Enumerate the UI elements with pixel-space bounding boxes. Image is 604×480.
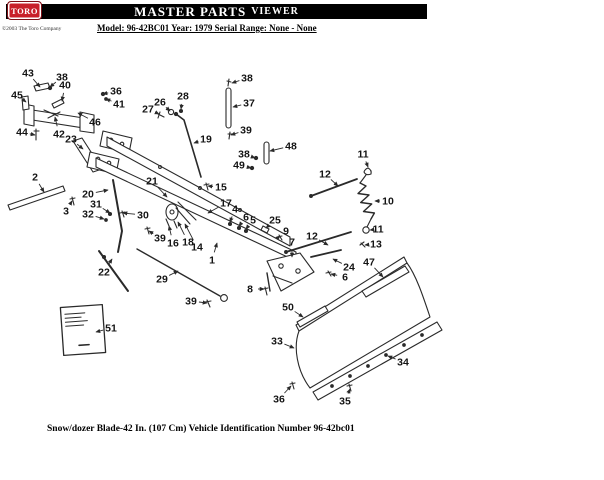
part-callout-19-23[interactable]: 19 — [200, 134, 212, 146]
part-callout-41-5[interactable]: 41 — [113, 99, 125, 111]
part-callout-34-56[interactable]: 34 — [397, 357, 409, 369]
part-callout-36-4[interactable]: 36 — [110, 86, 122, 98]
part-callout-1-31[interactable]: 1 — [209, 255, 215, 267]
part-callout-44-7[interactable]: 44 — [16, 127, 28, 139]
part-callout-21-25[interactable]: 21 — [146, 176, 158, 188]
part-callout-39-41[interactable]: 39 — [240, 125, 252, 137]
part-callout-39-18[interactable]: 39 — [185, 296, 197, 308]
part-callout-29-17[interactable]: 29 — [156, 274, 168, 286]
part-callout-26-21[interactable]: 26 — [154, 97, 166, 109]
callout-leader-19-23 — [194, 142, 198, 143]
part-callout-27-20[interactable]: 27 — [142, 104, 154, 116]
parts-diagram: 4338404536414644422323203132302229395127… — [0, 0, 604, 480]
callout-leader-50-54 — [295, 311, 303, 317]
callout-leader-11-45 — [366, 161, 368, 167]
part-callout-35-57[interactable]: 35 — [339, 396, 351, 408]
callout-leader-17-26 — [208, 207, 219, 213]
callout-leader-26-21 — [166, 107, 170, 111]
part-callout-45-3[interactable]: 45 — [11, 90, 23, 102]
callout-leader-35-57 — [348, 389, 350, 394]
part-callout-10-47[interactable]: 10 — [382, 196, 394, 208]
callout-leader-2-10 — [39, 184, 44, 192]
callout-leader-39-30 — [149, 231, 153, 234]
toro-logo-text: TORO — [11, 6, 38, 16]
part-callout-12-46[interactable]: 12 — [319, 169, 331, 181]
master-parts-viewer-window: MASTER PARTS VIEWER TORO ©2003 The Toro … — [0, 0, 604, 480]
part-callout-48-42[interactable]: 48 — [285, 141, 297, 153]
part-callout-46-6[interactable]: 46 — [89, 117, 101, 129]
callout-leader-22-16 — [108, 259, 112, 265]
part-callout-2-10[interactable]: 2 — [32, 172, 38, 184]
part-callout-33-55[interactable]: 33 — [271, 336, 283, 348]
part-callout-11-45[interactable]: 11 — [357, 149, 368, 161]
callout-leader-18-28 — [178, 222, 184, 235]
part-callout-23-9[interactable]: 23 — [65, 134, 77, 146]
callout-leader-24-51 — [333, 259, 342, 263]
part-callout-7-37[interactable]: 7 — [289, 237, 295, 249]
part-callout-32-14[interactable]: 32 — [82, 209, 94, 221]
part-callout-6-52[interactable]: 6 — [342, 272, 348, 284]
part-callout-25-35[interactable]: 25 — [269, 215, 281, 227]
callout-leader-37-40 — [233, 105, 241, 107]
part-callout-22-16[interactable]: 22 — [98, 267, 110, 279]
part-callout-28-22[interactable]: 28 — [177, 91, 189, 103]
part-callout-42-8[interactable]: 42 — [53, 129, 65, 141]
part-callout-39-30[interactable]: 39 — [154, 233, 166, 245]
part-callout-13-50[interactable]: 13 — [370, 239, 382, 251]
part-callout-38-39[interactable]: 38 — [241, 73, 253, 85]
callout-leader-6-52 — [331, 274, 337, 275]
part-callout-4-32[interactable]: 4 — [232, 204, 238, 216]
part-callout-14-29[interactable]: 14 — [191, 242, 203, 254]
callout-leader-20-12 — [96, 190, 108, 192]
part-callout-5-34[interactable]: 5 — [250, 215, 256, 227]
callout-leader-30-15 — [123, 213, 135, 214]
part-callout-51-19[interactable]: 51 — [105, 323, 117, 335]
callout-leader-27-20 — [155, 112, 159, 114]
part-callout-43-0[interactable]: 43 — [22, 68, 34, 80]
callout-leader-32-14 — [96, 216, 104, 219]
part-callout-16-27[interactable]: 16 — [167, 238, 179, 250]
callout-leader-31-13 — [103, 208, 110, 213]
part-callout-17-26[interactable]: 17 — [220, 198, 232, 210]
part-callout-8-38[interactable]: 8 — [247, 284, 253, 296]
callout-leader-16-27 — [169, 226, 171, 235]
part-callout-36-58[interactable]: 36 — [273, 394, 285, 406]
callout-leader-3-11 — [70, 201, 72, 204]
part-callout-37-40[interactable]: 37 — [243, 98, 255, 110]
part-callout-40-2[interactable]: 40 — [59, 80, 71, 92]
callout-leader-29-17 — [169, 271, 178, 275]
callout-leader-36-58 — [284, 386, 291, 393]
callout-leader-47-53 — [374, 268, 383, 277]
part-callout-3-11[interactable]: 3 — [63, 206, 69, 218]
part-callout-6-33[interactable]: 6 — [243, 212, 249, 224]
part-callout-15-24[interactable]: 15 — [215, 182, 227, 194]
toro-logo[interactable]: TORO — [7, 1, 42, 20]
part-callout-30-15[interactable]: 30 — [137, 210, 149, 222]
callout-leader-28-22 — [181, 104, 182, 109]
callout-leader-48-42 — [270, 148, 283, 151]
callout-leader-38-39 — [232, 81, 239, 83]
callout-leader-38-1 — [50, 82, 56, 87]
callout-leader-1-31 — [214, 243, 217, 252]
part-callout-12-49[interactable]: 12 — [306, 231, 318, 243]
instruction-sheet-icon — [60, 305, 105, 356]
callout-leader-44-7 — [30, 134, 35, 135]
part-callout-47-53[interactable]: 47 — [363, 257, 375, 269]
callout-leader-12-46 — [331, 179, 338, 186]
diagram-caption: Snow/dozer Blade-42 In. (107 Cm) Vehicle… — [47, 424, 355, 434]
part-callout-49-44[interactable]: 49 — [233, 160, 245, 172]
part-callout-11-48[interactable]: 11 — [372, 224, 383, 236]
part-callout-50-54[interactable]: 50 — [282, 302, 294, 314]
callout-leader-33-55 — [284, 344, 294, 348]
